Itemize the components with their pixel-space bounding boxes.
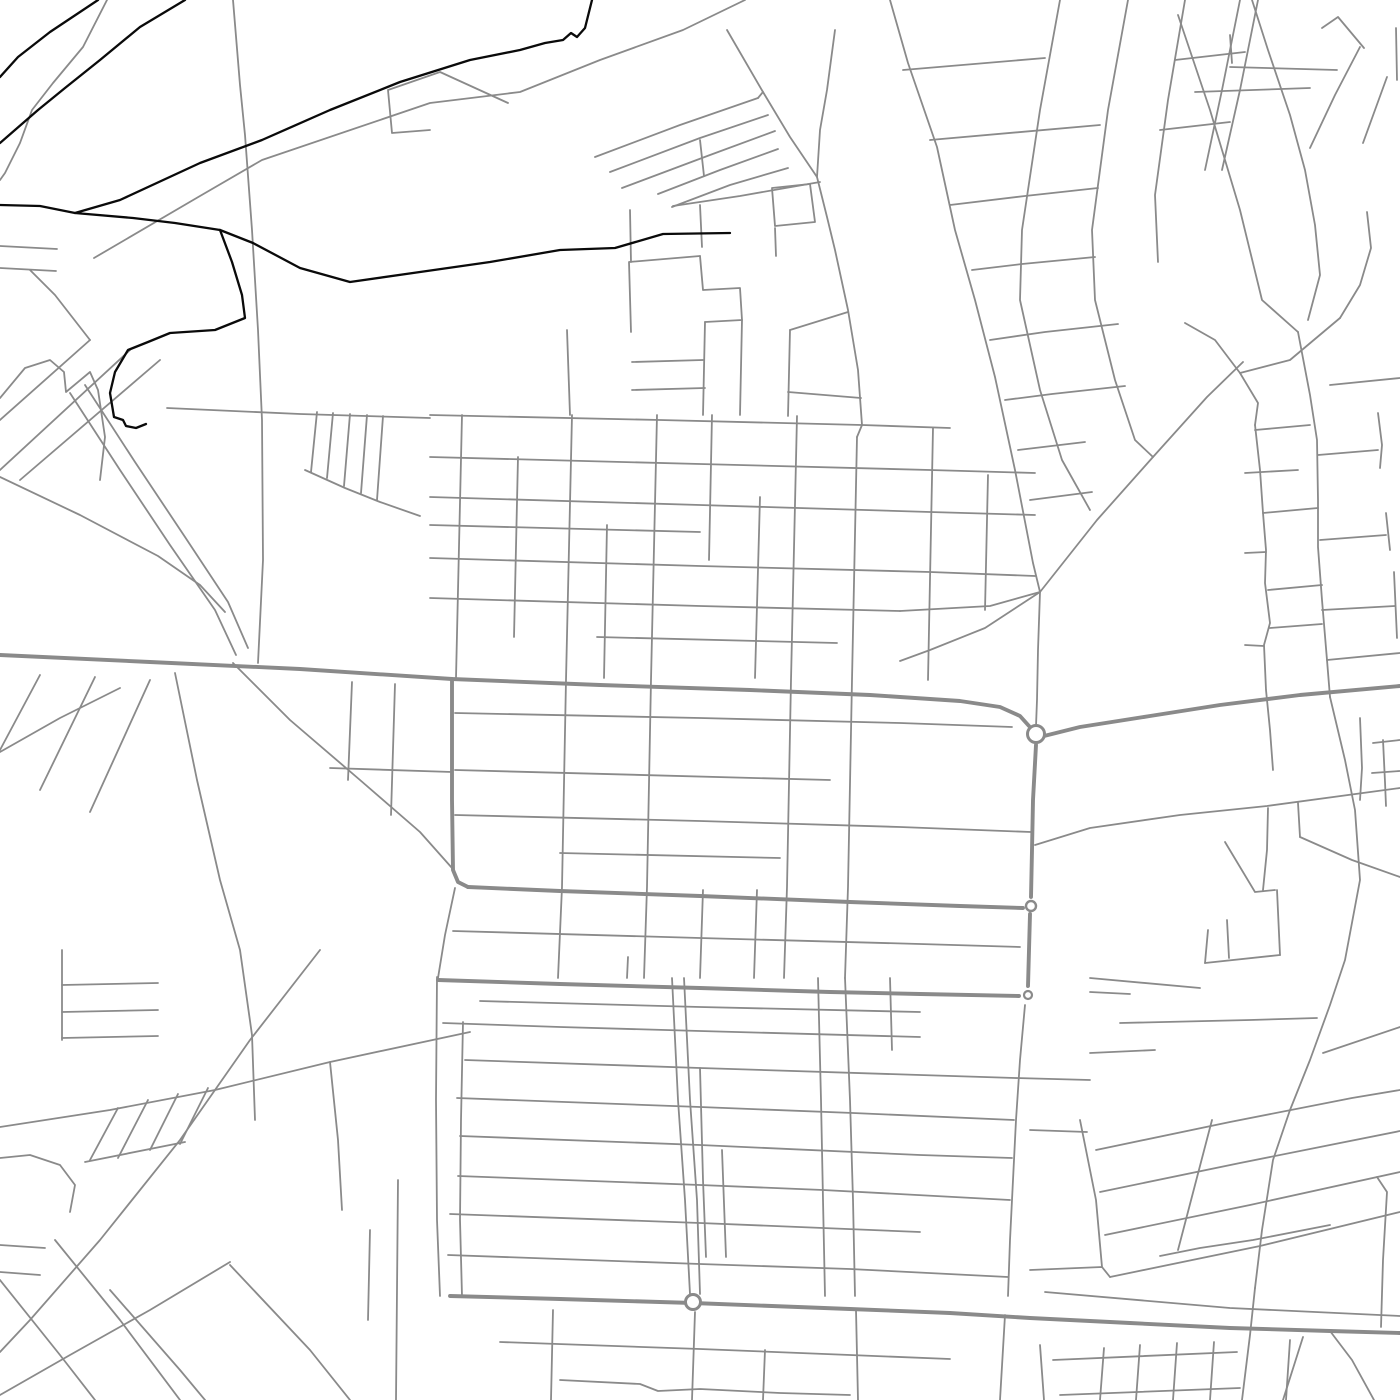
road-minor-segment	[1327, 653, 1400, 660]
road-minor-segment	[62, 983, 158, 985]
road-minor-segment	[1270, 624, 1322, 628]
road-minor-segment	[0, 246, 57, 249]
road-minor-segment	[1245, 470, 1298, 473]
road-major-layer	[0, 655, 1400, 1333]
map-canvas	[0, 0, 1400, 1400]
waterway-layer	[0, 0, 730, 428]
road-minor-segment	[890, 0, 1040, 592]
road-minor-segment	[455, 770, 830, 780]
road-minor-segment	[361, 415, 367, 493]
road-minor-segment	[990, 324, 1118, 340]
road-minor-segment	[458, 1176, 1010, 1200]
road-minor-segment	[629, 256, 700, 332]
road-minor-segment	[1363, 77, 1387, 143]
road-minor-segment	[1008, 1005, 1025, 1296]
road-minor-segment	[0, 350, 130, 470]
road-minor-segment	[430, 598, 900, 611]
road-minor-segment	[167, 408, 430, 418]
road-minor-segment	[55, 1240, 180, 1400]
road-minor-segment	[692, 1312, 695, 1400]
road-minor-segment	[1298, 332, 1330, 697]
road-minor-segment	[560, 1380, 850, 1395]
road-major-segment	[452, 679, 468, 887]
road-minor-segment	[455, 713, 1012, 727]
road-minor-segment	[1040, 362, 1243, 592]
road-minor-segment	[950, 188, 1098, 205]
road-minor-segment	[448, 1255, 1008, 1277]
road-minor-segment	[175, 673, 255, 1120]
road-major-segment	[0, 655, 1029, 726]
road-minor-segment	[1222, 0, 1258, 170]
road-minor-segment	[1178, 15, 1298, 332]
road-minor-segment	[1000, 1315, 1005, 1400]
road-minor-segment	[1045, 1292, 1400, 1316]
road-minor-segment	[684, 978, 700, 1294]
road-minor-segment	[630, 210, 631, 262]
road-minor-segment	[1110, 1212, 1400, 1277]
road-minor-segment	[0, 688, 120, 752]
roundabout	[1026, 901, 1036, 911]
road-minor-segment	[1020, 0, 1090, 510]
road-minor-segment	[1377, 1177, 1387, 1327]
roundabout-layer	[686, 726, 1045, 1310]
road-minor-segment	[30, 270, 90, 340]
road-minor-segment	[784, 416, 797, 978]
waterway-segment	[0, 0, 98, 77]
road-minor-segment	[1090, 1050, 1155, 1053]
road-minor-segment	[985, 475, 988, 610]
road-minor-segment	[788, 392, 861, 398]
road-minor-segment	[558, 415, 572, 978]
road-minor-segment	[0, 268, 56, 271]
road-minor-segment	[0, 1272, 40, 1275]
road-minor-segment	[1240, 318, 1340, 373]
road-minor-segment	[1320, 535, 1386, 540]
road-minor-segment	[1230, 67, 1337, 70]
road-minor-segment	[1322, 606, 1395, 610]
road-minor-segment	[70, 393, 236, 655]
road-minor-segment	[438, 888, 455, 978]
road-minor-segment	[430, 497, 1035, 515]
road-minor-segment	[443, 1023, 920, 1037]
road-minor-segment	[1090, 978, 1200, 988]
road-minor-segment	[903, 58, 1045, 70]
road-minor-segment	[0, 950, 320, 1352]
road-minor-segment	[1080, 1120, 1102, 1267]
road-minor-segment	[700, 1068, 706, 1257]
road-minor-segment	[1030, 1130, 1087, 1132]
road-minor-segment	[1205, 0, 1240, 170]
road-minor-segment	[1178, 1120, 1212, 1250]
road-minor-segment	[551, 1310, 553, 1400]
road-minor-segment	[930, 125, 1100, 140]
road-minor-segment	[94, 0, 745, 258]
road-minor-segment	[430, 558, 1035, 576]
road-minor-segment	[1155, 0, 1185, 262]
road-minor-segment	[1373, 740, 1400, 743]
road-minor-segment	[1378, 413, 1382, 468]
road-minor-segment	[230, 1265, 350, 1400]
road-minor-segment	[1018, 442, 1085, 450]
roundabout	[1024, 991, 1032, 999]
road-minor-segment	[597, 637, 837, 643]
road-minor-segment	[20, 360, 160, 480]
road-minor-segment	[453, 931, 1020, 947]
road-minor-segment	[818, 978, 825, 1296]
road-minor-segment	[1268, 585, 1322, 590]
road-minor-segment	[1310, 47, 1360, 148]
road-minor-segment	[348, 682, 352, 780]
road-major-segment	[438, 980, 1019, 996]
road-minor-segment	[327, 413, 333, 478]
road-minor-segment	[703, 322, 705, 415]
road-minor-segment	[1205, 955, 1280, 963]
roundabout	[686, 1295, 701, 1310]
road-minor-segment	[377, 416, 383, 500]
road-minor-segment	[632, 360, 703, 362]
waterway-segment	[220, 230, 730, 282]
road-minor-segment	[1263, 808, 1268, 890]
road-minor-segment	[1252, 0, 1320, 320]
road-minor-segment	[368, 1230, 370, 1320]
road-minor-segment	[1040, 1345, 1044, 1400]
road-minor-segment	[62, 1036, 158, 1038]
road-minor-segment	[758, 92, 763, 98]
waterway-segment	[75, 0, 592, 213]
road-minor-segment	[465, 1060, 1090, 1080]
road-minor-segment	[391, 684, 395, 815]
road-minor-segment	[62, 1010, 158, 1012]
road-minor-segment	[0, 477, 225, 612]
road-major-segment	[1044, 686, 1400, 736]
road-minor-segment	[514, 457, 518, 637]
road-minor-segment	[85, 385, 248, 648]
road-minor-segment	[1245, 552, 1266, 553]
road-minor-segment	[567, 330, 570, 415]
road-minor-segment	[1330, 1331, 1374, 1400]
road-minor-segment	[1030, 1267, 1110, 1277]
road-minor-segment	[1100, 1348, 1104, 1400]
road-minor-segment	[1360, 718, 1362, 800]
road-minor-segment	[1298, 803, 1300, 837]
road-minor-segment	[1120, 1018, 1317, 1023]
road-minor-segment	[722, 1150, 726, 1257]
road-minor-segment	[456, 415, 462, 678]
map	[0, 0, 1400, 1400]
road-minor-segment	[972, 257, 1095, 270]
road-minor-segment	[700, 205, 702, 247]
road-minor-segment	[0, 1262, 230, 1395]
road-minor-segment	[233, 663, 452, 868]
road-major-segment	[468, 887, 1023, 908]
road-minor-segment	[1283, 1337, 1303, 1400]
road-minor-segment	[672, 168, 788, 207]
road-minor-segment	[0, 1245, 45, 1248]
road-minor-segment	[900, 592, 1040, 661]
road-minor-segment	[1255, 425, 1310, 430]
road-minor-segment	[344, 414, 350, 486]
road-minor-segment	[90, 1108, 118, 1160]
road-major-segment	[1028, 914, 1030, 986]
road-minor-segment	[740, 320, 742, 415]
road-minor-segment	[845, 437, 857, 978]
road-minor-segment	[1227, 920, 1229, 958]
road-minor-segment	[460, 1136, 1012, 1158]
road-minor-segment	[1195, 88, 1310, 92]
road-minor-segment	[1242, 1288, 1255, 1400]
road-minor-segment	[436, 977, 440, 1296]
road-minor-segment	[457, 1098, 1014, 1120]
road-minor-segment	[0, 1155, 75, 1212]
road-minor-segment	[0, 675, 40, 750]
road-minor-segment	[772, 184, 815, 226]
road-minor-segment	[700, 256, 742, 322]
road-minor-segment	[900, 592, 1040, 611]
road-minor-segment	[1277, 890, 1280, 955]
road-minor-segment	[0, 340, 90, 420]
road-minor-segment	[1090, 992, 1130, 994]
road-minor-segment	[790, 312, 848, 330]
road-minor-segment	[709, 415, 712, 560]
road-minor-segment	[430, 415, 950, 428]
road-minor-segment	[455, 815, 1031, 832]
road-minor-segment	[40, 677, 95, 790]
road-minor-segment	[627, 957, 628, 978]
road-minor-segment	[928, 428, 933, 680]
road-minor-segment	[118, 1100, 148, 1158]
road-minor-segment	[1323, 1027, 1400, 1053]
road-minor-segment	[480, 1001, 920, 1012]
road-minor-segment	[1005, 386, 1125, 400]
road-minor-segment	[890, 978, 892, 1050]
waterway-segment	[0, 205, 220, 230]
road-minor-segment	[1036, 592, 1040, 726]
road-minor-segment	[1210, 1342, 1214, 1400]
roundabout	[1028, 726, 1045, 743]
road-minor-segment	[1396, 28, 1397, 80]
road-minor-segment	[817, 30, 835, 177]
road-minor-segment	[632, 388, 705, 390]
road-minor-segment	[775, 228, 776, 256]
road-minor-segment	[1372, 771, 1400, 773]
road-minor-layer	[0, 0, 1400, 1400]
road-minor-segment	[1035, 788, 1400, 845]
road-minor-segment	[727, 30, 862, 437]
road-minor-segment	[1205, 930, 1208, 963]
road-minor-segment	[1245, 645, 1264, 646]
road-minor-segment	[1300, 837, 1400, 877]
road-minor-segment	[1263, 508, 1318, 513]
road-minor-segment	[1160, 1225, 1330, 1256]
road-minor-segment	[1394, 572, 1397, 638]
road-minor-segment	[311, 412, 317, 472]
road-minor-segment	[1255, 425, 1273, 770]
road-minor-segment	[1160, 122, 1230, 130]
road-minor-segment	[0, 0, 107, 180]
road-minor-segment	[500, 1342, 950, 1359]
road-minor-segment	[1386, 513, 1390, 550]
road-minor-segment	[330, 1062, 342, 1210]
road-minor-segment	[0, 1280, 95, 1400]
road-minor-segment	[754, 890, 757, 978]
road-minor-segment	[788, 330, 790, 416]
road-minor-segment	[1318, 450, 1378, 455]
road-minor-segment	[700, 890, 703, 978]
road-minor-segment	[396, 1180, 398, 1400]
road-minor-segment	[1053, 1352, 1237, 1360]
road-minor-segment	[1322, 17, 1364, 48]
road-minor-segment	[755, 497, 760, 678]
road-major-segment	[450, 1296, 1400, 1333]
road-major-segment	[1031, 745, 1036, 897]
road-minor-segment	[845, 978, 855, 1296]
road-minor-segment	[658, 149, 778, 194]
road-minor-segment	[1060, 1388, 1240, 1395]
road-minor-segment	[90, 680, 150, 812]
road-minor-segment	[430, 457, 1035, 473]
road-minor-segment	[430, 525, 700, 532]
road-minor-segment	[1175, 52, 1245, 60]
road-minor-segment	[1340, 212, 1371, 318]
road-minor-segment	[1255, 697, 1360, 1288]
waterway-segment	[110, 230, 245, 428]
road-minor-segment	[0, 1032, 470, 1127]
road-minor-segment	[672, 978, 690, 1294]
road-minor-segment	[560, 853, 780, 858]
road-minor-segment	[1330, 378, 1400, 385]
road-minor-segment	[233, 0, 263, 663]
road-minor-segment	[604, 525, 607, 678]
